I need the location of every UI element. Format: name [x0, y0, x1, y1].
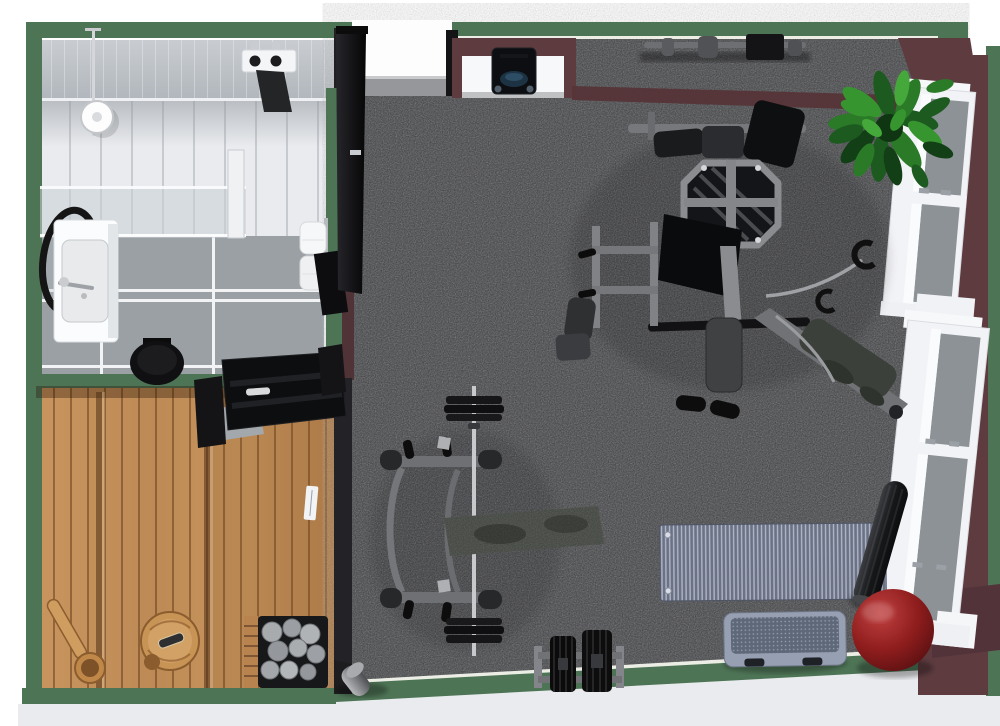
- washbasin: [54, 220, 118, 342]
- hanging-towel: [256, 70, 292, 112]
- shower-head: [81, 28, 119, 138]
- dumbbell: [582, 630, 612, 692]
- bathroom-fixtures: [37, 28, 348, 385]
- speaker: [492, 48, 536, 94]
- yoga-mat: [660, 523, 887, 601]
- dumbbell: [550, 636, 576, 692]
- wooden-bucket: [141, 612, 199, 670]
- machine-bench-pad: [706, 318, 742, 392]
- floorplan-stage: [0, 0, 1000, 726]
- door-frame: [194, 376, 226, 448]
- aerobic-step: [723, 611, 848, 674]
- toilet: [130, 338, 184, 385]
- towel-hook-rack: [242, 42, 296, 112]
- sauna-details: [36, 344, 346, 692]
- partition-return-wall: [228, 150, 244, 238]
- floorplan-render: [0, 0, 1000, 726]
- bench-seam: [96, 392, 102, 690]
- top-wall: [26, 22, 968, 38]
- exercise-ball: [852, 589, 934, 678]
- door-frame: [318, 344, 346, 396]
- left-wall: [26, 22, 42, 696]
- sauna-heater: [244, 616, 328, 688]
- door-handle: [350, 150, 361, 155]
